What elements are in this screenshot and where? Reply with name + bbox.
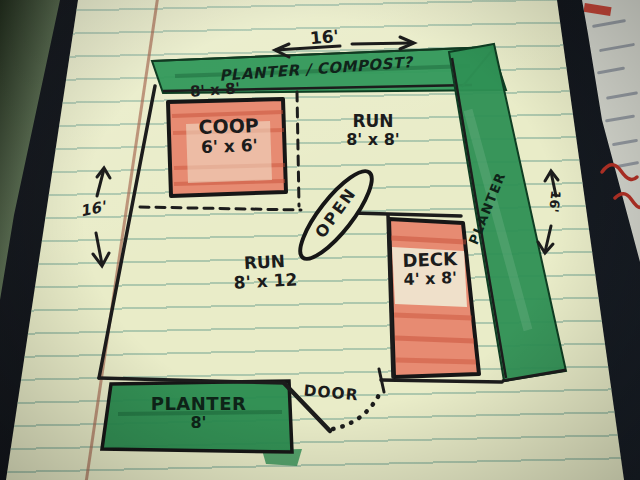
dashed-divider-vertical [297,92,299,206]
left-wall [99,86,155,378]
coop-footprint-label: 8' x 8' [189,80,240,100]
bottom-planter-size: 8' [131,414,266,432]
coop-size: 6' x 6' [180,136,279,158]
top-dimension-label: 16' [309,27,339,48]
run-upper-label: RUN 8' x 8' [330,112,416,149]
deck-wall-top [352,213,461,216]
left-dimension-arrow-up [97,168,110,196]
run-lower-label: RUN 8' x 12 [212,250,318,293]
run-upper-size: 8' x 8' [330,131,416,149]
deck-label: DECK 4' x 8' [391,249,468,290]
deck-size: 4' x 8' [392,269,469,290]
dashed-divider-horizontal [140,207,301,210]
top-dimension-arrow-right [352,37,414,49]
bottom-planter-name: PLANTER [131,394,266,414]
coop-label: COOP 6' x 6' [179,114,278,158]
bottom-wall-right [381,380,502,382]
right-dimension-arrow-down [538,226,553,253]
deck-box [389,219,479,377]
photo-of-plan: 16' PLANTER / COMPOST? 8' x 8' COOP 6' x… [0,0,640,480]
run-upper-name: RUN [330,112,416,131]
red-pen-scribble [602,165,640,208]
left-dimension-arrow-down [93,233,109,266]
bottom-planter-label: PLANTER 8' [131,394,266,432]
